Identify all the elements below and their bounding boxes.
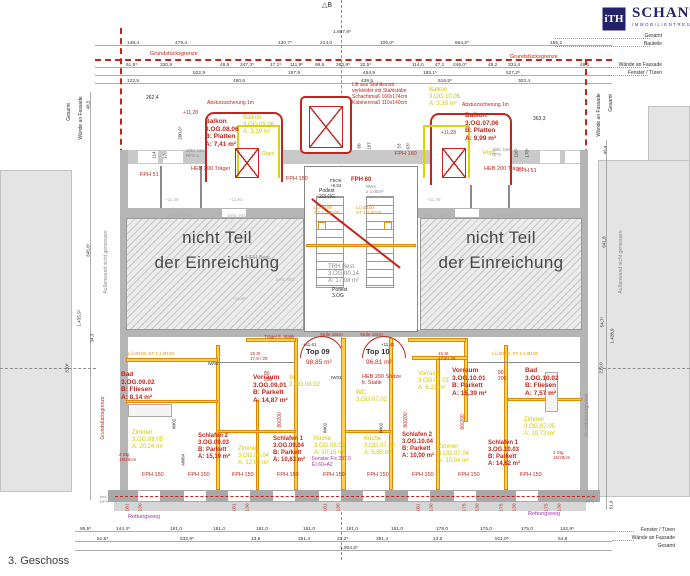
room-label: Zimmer3.OG.07.05A: 19,72 m² <box>524 417 555 438</box>
dim-row-top-1: 148,4479,4120,7⁵214,0106,0⁵664,2⁵155,2 <box>0 41 690 49</box>
dimension-value: 532,9⁵ <box>180 537 194 542</box>
unit-area: 96,81 m² <box>366 359 392 367</box>
dimension-value: 178,0 <box>436 527 448 532</box>
plan-label: Grundstücksgrenze <box>510 54 558 60</box>
dimension-value: 181,0 <box>213 527 225 532</box>
room-label: Zimmer3.OG.08.05A: 20,24 m² <box>132 430 163 451</box>
room-label: Balkon3.OG.08.06B: PlattenA: 7,41 m² <box>205 118 239 149</box>
plan-label: best. Zimmer <box>166 213 192 218</box>
unit-area: 98,85 m² <box>306 359 332 367</box>
dimension-value: 175 <box>545 503 550 511</box>
dimension-value: 122,5 <box>127 79 139 84</box>
plan-label: FPH 150 <box>142 472 164 478</box>
dimension-value: 527,2⁵ <box>506 71 520 76</box>
plan-label: best. WC <box>276 277 295 282</box>
plan-label: 60 <box>356 143 361 148</box>
plan-label: 80200 <box>498 371 506 383</box>
plan-label: +11,39 <box>165 197 179 202</box>
side-label: Wände an Fassade <box>597 93 603 136</box>
floor-plan-canvas: nicht Teil der Einreichung nicht Teil de… <box>0 0 690 576</box>
plan-label: 641,8 <box>601 236 606 247</box>
room-label: TRH Best.3.OG.00.14A: 17,08 m² <box>328 264 359 285</box>
plan-label: LÜ Ø100. ST 1.4 Ø100 <box>492 351 538 356</box>
plan-label: 48,5 <box>85 101 90 110</box>
unit-label: Top 09 <box>306 348 330 357</box>
dimension-value: 511,0⁵ <box>495 537 509 542</box>
dimension-value: 1.904,5⁵ <box>340 546 358 551</box>
dimension-value: 175 <box>500 503 505 511</box>
plan-label: 363,3 <box>533 117 546 123</box>
dim-row-facade-ticks: 1811301811301811301811301751301751301751… <box>0 505 690 513</box>
dimension-value: 142,9⁵ <box>560 527 574 532</box>
side-label: Gesamt <box>609 94 615 112</box>
plan-label: 80/200 <box>404 412 410 427</box>
plan-label: bes.RFS <box>100 495 108 504</box>
dimension-value: 181 <box>417 503 422 511</box>
plan-label: FPH 150 <box>520 472 542 478</box>
dimension-value: 181,0 <box>256 527 268 532</box>
dimension-value: 130 <box>337 503 342 511</box>
dimension-value: 48,2 <box>488 63 497 68</box>
dimension-value: 144,4⁵ <box>116 527 130 532</box>
plan-label: 1.428,9 <box>609 328 614 343</box>
plan-label: IW02 <box>322 423 327 434</box>
dimension-value: 32,5⁵ <box>360 63 371 68</box>
room-label: Küche3.OG.07.03A: 5,85 m² <box>364 436 395 457</box>
dimension-value: 175 <box>463 503 468 511</box>
dimension-value: 181 <box>126 503 131 511</box>
plan-label: 54,7⁵ <box>599 317 604 328</box>
dimension-value: 13,5 <box>251 537 260 542</box>
dimension-value: 664,2⁵ <box>455 41 469 46</box>
dimension-value: 96,5 <box>315 63 324 68</box>
plan-label: Podest2/3.OG <box>319 189 335 201</box>
plan-label: 15 St17,9 / 29 <box>438 351 456 362</box>
room-label: Schlafen 13.OG.09.04B: ParkettA: 10,63 m… <box>273 436 305 464</box>
room-label: Bad3.OG.09.02B: FliesenA: 8,14 m² <box>121 371 155 402</box>
plan-label: IW03 <box>331 375 342 380</box>
dimension-value: 454,9 <box>363 71 375 76</box>
plan-label: IW02 <box>378 423 383 434</box>
room-label: Schlafen 23.OG.10.04B: ParkettA: 10,00 m… <box>402 432 434 460</box>
dimension-value: 351,4 <box>376 537 388 542</box>
logo-name: SCHANTL <box>632 6 690 21</box>
dimension-value: 111,9⁵ <box>290 63 303 68</box>
room-label: WC3.OG.07.02 <box>356 390 387 404</box>
dimension-value: 181 <box>233 503 238 511</box>
plan-label: 219,0 <box>598 362 603 373</box>
room-label: Schlafen 23.OG.09.03B: ParkettA: 15,19 m… <box>198 433 230 461</box>
dimension-value: 13,5 <box>433 537 442 542</box>
dimension-value: 181,0 <box>346 527 358 532</box>
plan-label: Stufe 18cm <box>360 332 383 337</box>
plan-label: FPH 150 <box>188 472 210 478</box>
dimension-value: 197,9 <box>288 71 300 76</box>
plan-label: Fenster Fix 287,0EI 60+A2 <box>312 457 351 469</box>
dimension-value: 155,2 <box>550 41 562 46</box>
dimension-value: 130 <box>139 503 144 511</box>
plan-label: 262,4 <box>146 96 159 102</box>
plan-label: LÜ Ø100ST 1.3 Ø100 <box>356 205 381 216</box>
dimension-value: 247,3⁵ <box>240 63 254 68</box>
logo-text: SCHANTL IMMOBILIENTREUHAND <box>632 6 690 27</box>
plan-label: abbr. bes.RFS a <box>186 148 206 159</box>
plan-label: LÜ Ø100. ST 1.1 Ø100 <box>128 351 174 356</box>
dimension-value: 175,0 <box>480 527 492 532</box>
plan-label: +11,39 <box>427 197 441 202</box>
room-label: Zimmer3.OG.08.04A: 12,80 m² <box>238 446 269 467</box>
unit-label: Top 10 <box>366 348 390 357</box>
plan-label: FPH 150 <box>277 472 299 478</box>
dimension-value: 516,5⁵ <box>438 79 452 84</box>
dimension-value: 54,8 <box>558 537 567 542</box>
plan-label: Rigol <box>262 151 275 157</box>
dimension-value: 21,2⁵ <box>337 537 348 542</box>
room-label: Küche3.OG.08.03A: 10,15 m² <box>314 436 345 457</box>
room-label: Vorraum3.OG.07.01A: 6,23 m² <box>418 371 449 392</box>
plan-label: +11,83 <box>229 197 243 202</box>
plan-label: Grundstücksgrenze <box>150 51 198 57</box>
dimension-value: 263,9⁵ <box>336 63 350 68</box>
plan-label: IW02 <box>171 419 176 430</box>
room-label: Vorraum3.OG.10.01B: ParkettA: 15,39 m² <box>452 367 487 398</box>
plan-label: best. Küche <box>228 213 252 218</box>
side-label: Wände an Fassade <box>79 96 85 139</box>
dimension-value: 17,1⁵ <box>270 63 281 68</box>
dimension-value: 480,6 <box>233 79 245 84</box>
plan-label: Grundstücksgrenze <box>585 393 591 436</box>
dimension-value: 130 <box>430 503 435 511</box>
plan-label: RWA≥ 1,00m² <box>366 184 384 195</box>
plan-label: 1.435,9⁵ <box>76 310 81 327</box>
plan-label: 80/200 <box>278 412 284 427</box>
dimension-value: 522,9 <box>193 71 205 76</box>
plan-label: FPH 51 <box>140 172 159 178</box>
plan-label: FPH 150 <box>232 472 254 478</box>
dimension-value: 185,1⁵ <box>423 71 437 76</box>
dimension-value: 439,5 <box>361 79 373 84</box>
plan-label: +11,28 <box>441 131 456 137</box>
plan-label: FPH 150 <box>323 472 345 478</box>
plan-label: 15 St17,9 / 29 <box>250 351 268 362</box>
room-label: Schlafen 13.OG.10.03B: ParkettA: 14,62 m… <box>488 440 520 468</box>
dimension-value: 334,4 <box>508 63 520 68</box>
plan-label: +11,28 <box>183 111 198 117</box>
plan-label: 116⁵ <box>513 148 518 157</box>
dimension-value: 51,5⁵ <box>97 537 108 542</box>
plan-label: FPH 150 <box>286 176 308 182</box>
room-label: Balkon3.OG.07.06B: PlattenA: 9,99 m² <box>465 112 499 143</box>
plan-label: HEB 200 Träger <box>191 166 230 172</box>
plan-label: FPH 160 <box>395 151 417 157</box>
dim-row-bottom-1: 95,5⁵144,4⁵181,0181,0181,0181,0181,0181,… <box>0 527 690 535</box>
dimension-value: 181,0 <box>391 527 403 532</box>
plan-label: 200,6⁵ <box>177 126 182 139</box>
dimension-value: 148,4 <box>127 41 139 46</box>
plan-label: Träger lt. Statik <box>264 334 294 339</box>
dimension-value: 181 <box>324 503 329 511</box>
plan-label: 63⁵ <box>405 143 410 150</box>
dimension-value: 48,1 <box>580 63 589 68</box>
dimension-value: 61,5⁵ <box>126 63 137 68</box>
dimension-value: 114,0 <box>412 63 424 68</box>
plan-label: IW02 <box>208 361 219 366</box>
dimension-value: 246,0⁵ <box>453 63 467 68</box>
rescue-route-label: Rettungsweg <box>128 514 160 520</box>
plan-label: 80200 <box>264 372 272 384</box>
dim-row-top-4: 122,5480,6439,5516,5⁵303,4 <box>0 79 690 87</box>
plan-label: FPH 150 <box>458 472 480 478</box>
dim-row-bottom-2: 51,5⁵532,9⁵13,5351,421,2⁵351,413,5511,0⁵… <box>0 537 690 545</box>
room-label: Zimmer3.OG.07.04A: 10,04 m² <box>438 444 469 465</box>
plan-label: FbOK+9.52 <box>330 178 342 189</box>
plan-label: 49,4 <box>602 146 607 155</box>
plan-label: best. Küche <box>494 213 518 218</box>
plan-label: Grundstücksgrenze <box>101 396 107 439</box>
dimension-value: 351,4 <box>298 537 310 542</box>
logo-subtitle: IMMOBILIENTREUHAND <box>632 22 690 27</box>
dimension-value: 303,4 <box>518 79 530 84</box>
dimension-value: 181,0 <box>170 527 182 532</box>
plan-label: Außenwand nicht gemessen <box>619 230 625 293</box>
dimension-value: 1.887,8⁵ <box>333 30 351 35</box>
dimension-value: 130 <box>558 503 563 511</box>
dimension-value: 214,0 <box>320 41 332 46</box>
plan-label: Außenwand nicht gemessen <box>104 230 110 293</box>
plan-label: HEB 200 Stützelt. Statik <box>362 374 401 387</box>
dim-row-top-2: 61,5⁵330,948,5247,3⁵17,1⁵111,9⁵96,5263,9… <box>0 63 690 71</box>
plan-label: HFH Best. <box>246 255 271 261</box>
dimension-value: 330,9 <box>160 63 172 68</box>
room-label: Balkon3.OG.09.06A: 3,39 m² <box>243 115 274 136</box>
dimension-value: 175,0 <box>521 527 533 532</box>
dimension-value: 130 <box>246 503 251 511</box>
dimension-value: 48,5 <box>220 63 229 68</box>
plan-label: 80/200 <box>461 414 467 429</box>
plan-label: bes.RFS <box>586 495 594 504</box>
floor-title: 3. Geschoss <box>8 555 69 567</box>
plan-label: 167 <box>366 142 371 150</box>
company-logo: iTH SCHANTL IMMOBILIENTREUHAND <box>601 6 690 32</box>
room-label: WC3.OG.08.02 <box>289 375 320 389</box>
plan-label: Absturzsicherung 1m <box>207 101 254 107</box>
plan-label: 310⁵ <box>64 363 69 372</box>
plan-label: best. Zimmer <box>424 213 450 218</box>
plan-label: abbr. bes.RFS <box>492 147 512 158</box>
plan-label: LÜ Ø100ST 1.2 Ø100 <box>314 205 339 216</box>
dim-row-top-total: 1.887,8⁵ <box>0 30 690 38</box>
plan-label: Podest3.OG <box>332 288 348 300</box>
dim-row-bottom-total: 1.904,5⁵ <box>0 546 690 554</box>
dimension-value: 130 <box>513 503 518 511</box>
plan-label: Stufe 18cm <box>320 332 343 337</box>
dim-row-top-3: 522,9197,9454,9185,1⁵527,2⁵ <box>0 71 690 79</box>
plan-label: +11,40 <box>232 296 246 301</box>
side-label: Gesamt <box>67 103 73 121</box>
logo-mark-icon: iTH <box>601 6 627 32</box>
plan-label: FPH 150 <box>367 472 389 478</box>
plan-label: FPH 150 <box>412 472 434 478</box>
plan-label: 53 <box>396 143 401 148</box>
room-label: Balkon3.OG.10.06A: 3,39 m² <box>429 87 460 108</box>
plan-label: 645,8⁵ <box>85 243 90 256</box>
dimension-value: 47,1 <box>435 63 444 68</box>
plan-label: Absturzsicherung 1m <box>462 103 509 109</box>
plan-label: 2 Stg15/29cm <box>553 450 570 461</box>
plan-label: 34,3 <box>89 334 94 343</box>
plan-label: AW04 <box>180 454 185 466</box>
plan-label: △B <box>322 2 332 10</box>
plan-label: 178⁵ <box>524 148 529 157</box>
dimension-value: 181,0 <box>303 527 315 532</box>
plan-label: 2 Stg15/29cm <box>119 452 136 463</box>
plan-label: FPH 51 <box>518 168 537 174</box>
dimension-value: 95,5⁵ <box>80 527 91 532</box>
room-label: Bad3.OG.10.02B: FliesenA: 7,57 m² <box>525 367 559 398</box>
plan-label: 114 <box>151 151 156 158</box>
dimension-value: 120,7⁵ <box>278 41 292 46</box>
dimension-value: 130 <box>476 503 481 511</box>
dimension-value: 479,4 <box>175 41 187 46</box>
dimension-value: 106,0⁵ <box>380 41 394 46</box>
plan-label: 178 <box>162 151 167 159</box>
